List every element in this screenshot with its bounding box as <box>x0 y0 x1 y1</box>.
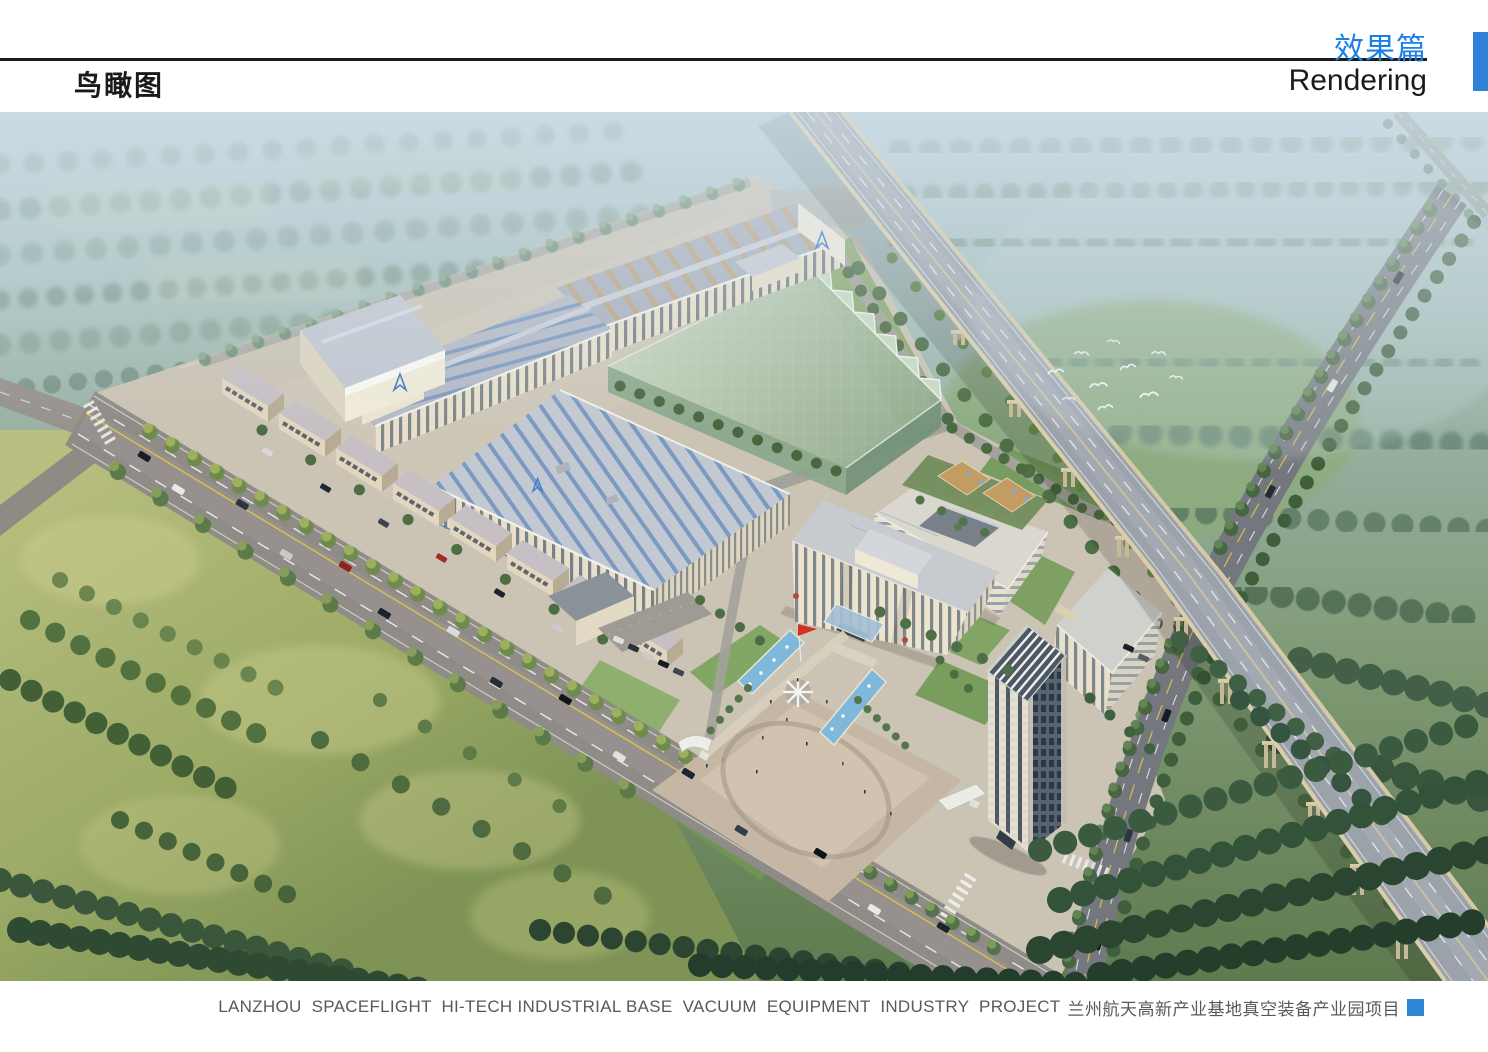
corner-tab <box>1473 32 1488 91</box>
header-rule <box>0 58 1427 61</box>
presentation-page: 鸟瞰图 效果篇 Rendering <box>0 0 1488 1052</box>
footer-caption-en: LANZHOU SPACEFLIGHT HI-TECH INDUSTRIAL B… <box>218 997 1060 1017</box>
footer-caption: LANZHOU SPACEFLIGHT HI-TECH INDUSTRIAL B… <box>218 997 1424 1017</box>
aerial-rendering-image <box>0 112 1488 981</box>
plaza-sculpture <box>784 678 812 706</box>
footer-caption-zh: 兰州航天高新产业基地真空装备产业园项目 <box>1068 995 1401 1020</box>
section-title-zh: 效果篇 <box>1334 24 1427 68</box>
rendering-scene <box>0 112 1488 981</box>
page-title: 鸟瞰图 <box>74 64 164 104</box>
footer-blue-square <box>1407 999 1424 1016</box>
section-title-en: Rendering <box>1289 64 1427 98</box>
